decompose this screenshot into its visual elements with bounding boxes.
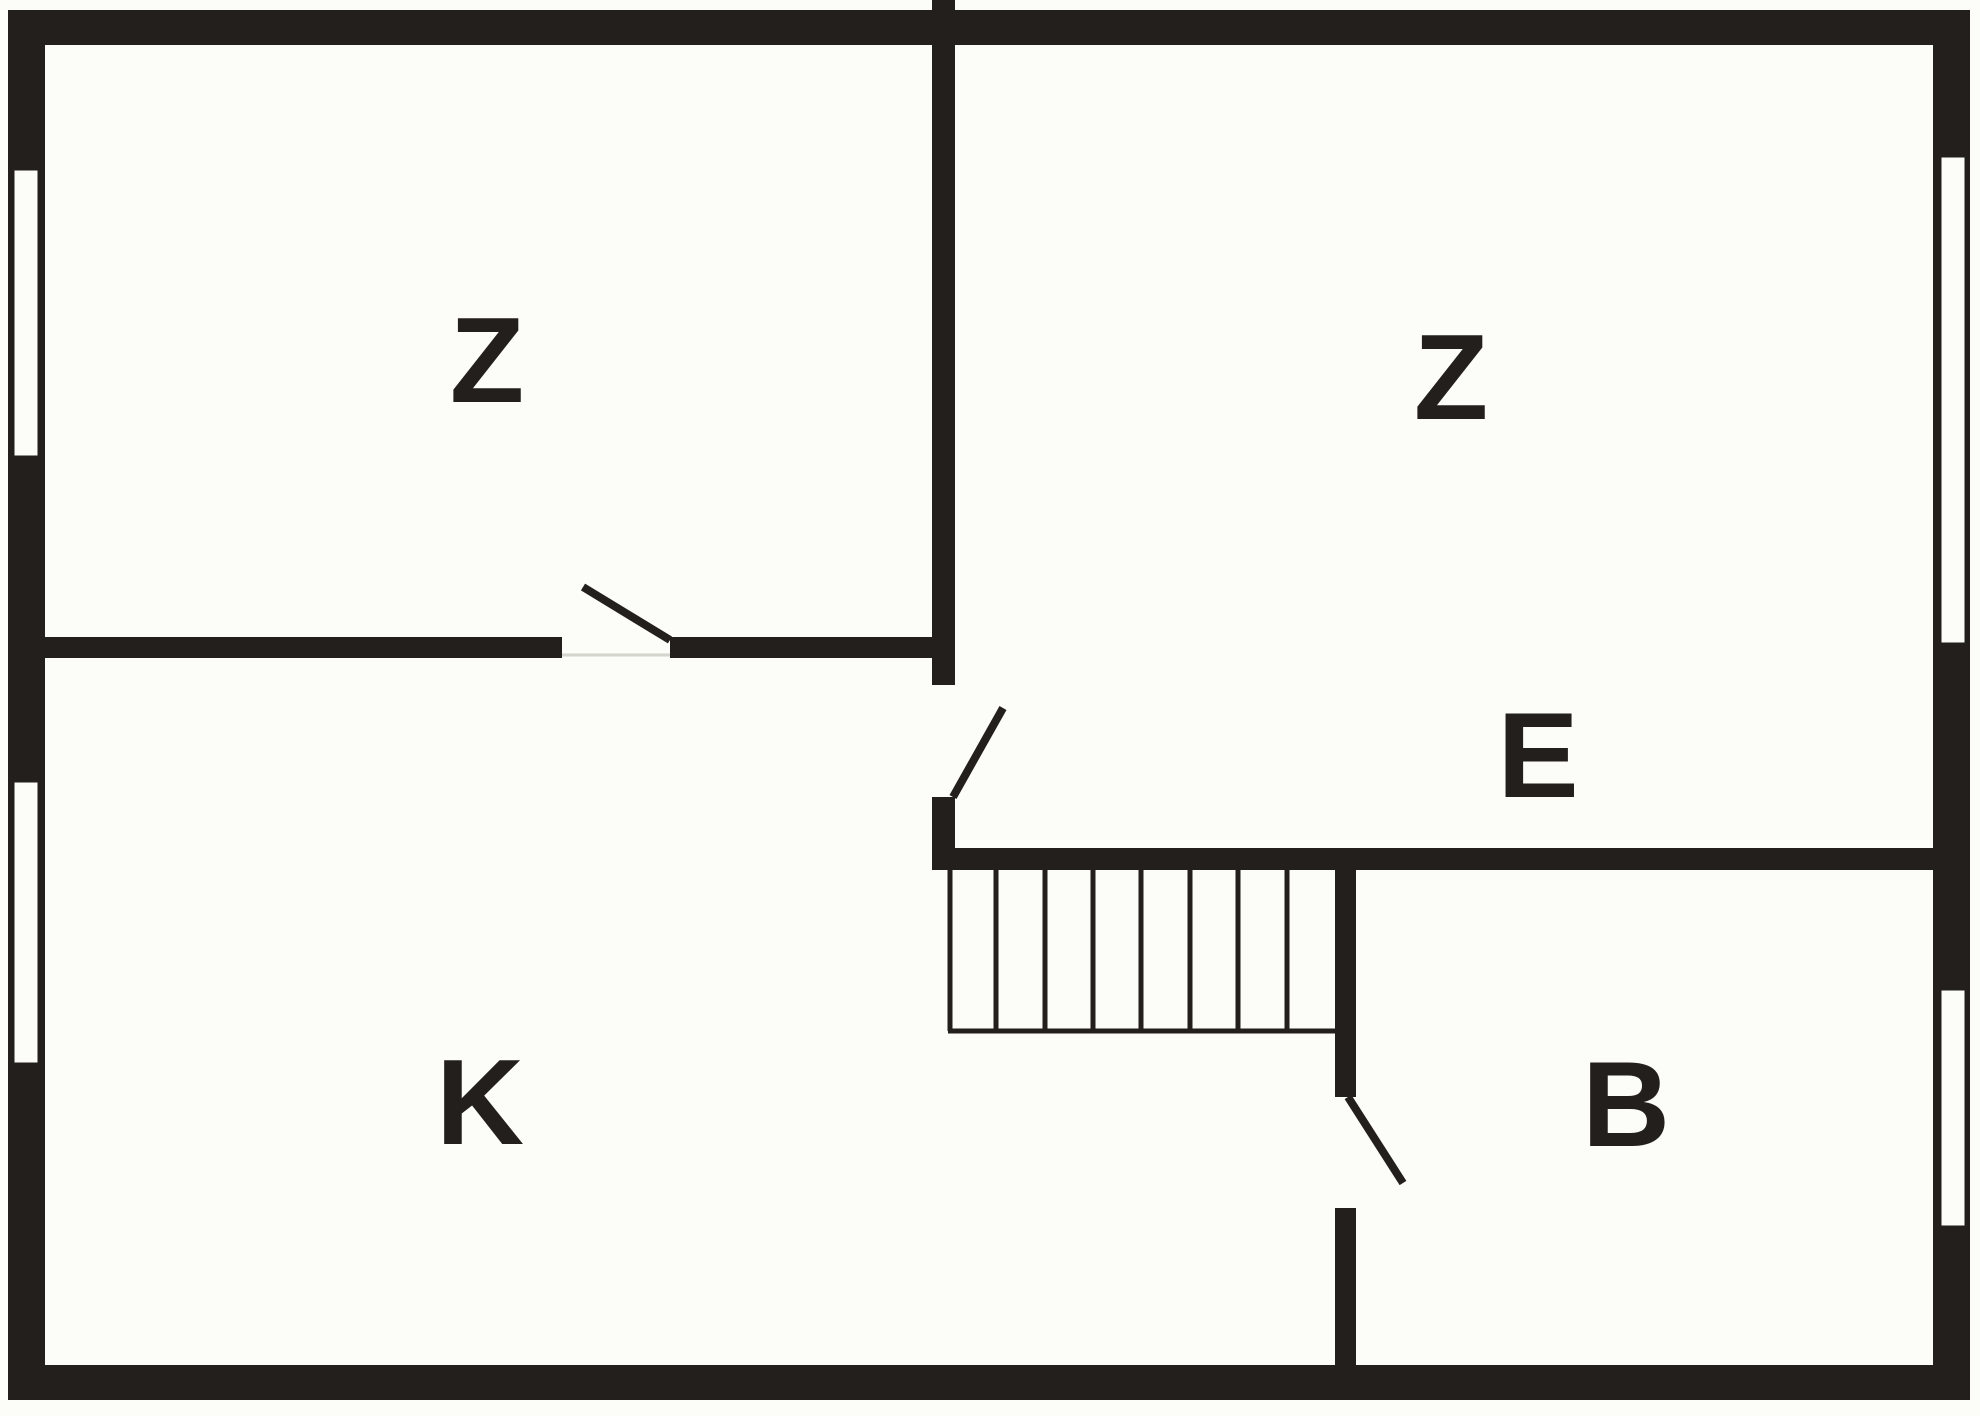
b-door-leaf (1348, 1097, 1403, 1183)
eb-divider-wall (932, 848, 1933, 870)
zk-door-leaf (583, 587, 670, 640)
zk-divider-wall-left-segment (45, 637, 562, 658)
staircase (948, 870, 1335, 1031)
b-wall-lower-segment (1335, 1208, 1356, 1365)
window-left-bottom (12, 780, 40, 1065)
room-label-b: B (1582, 1036, 1670, 1172)
window-left-top (12, 168, 40, 458)
floor-plan-drawing: Z Z E K B (0, 0, 1980, 1416)
room-label-z-right: Z (1414, 309, 1489, 445)
floor-plan-page: Z Z E K B (0, 0, 1980, 1416)
outer-wall-bottom (8, 1365, 1970, 1400)
central-wall-upper-segment (932, 0, 955, 685)
b-wall-upper-segment (1335, 870, 1356, 1097)
e-door-leaf (953, 708, 1003, 797)
room-label-k: K (436, 1034, 524, 1170)
room-label-z-left: Z (450, 292, 525, 428)
outer-wall-top (8, 10, 1970, 45)
room-label-e: E (1497, 687, 1578, 823)
window-right-top (1939, 155, 1967, 645)
zk-divider-wall-right-segment (670, 637, 932, 658)
window-right-bottom (1939, 988, 1967, 1228)
